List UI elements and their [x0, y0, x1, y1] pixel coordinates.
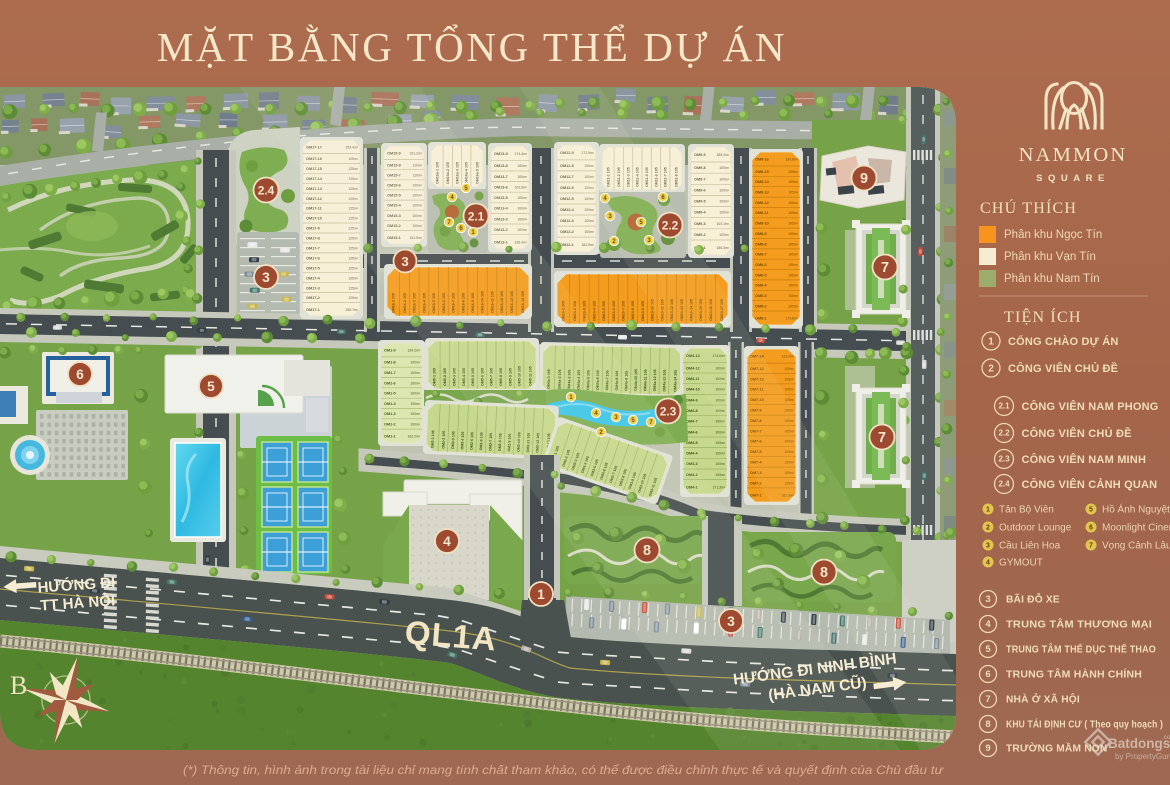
svg-text:7: 7 — [1089, 543, 1093, 550]
svg-text:105m²: 105m² — [788, 294, 798, 298]
svg-text:OM4a-12 105: OM4a-12 105 — [653, 369, 657, 391]
svg-text:OM17-9: OM17-9 — [306, 227, 320, 231]
svg-text:3: 3 — [985, 594, 990, 605]
svg-text:OM8-9: OM8-9 — [755, 232, 767, 236]
svg-text:105m²: 105m² — [788, 304, 798, 308]
svg-text:OM12-7: OM12-7 — [560, 175, 574, 179]
svg-text:180.8m²: 180.8m² — [786, 158, 799, 162]
svg-text:100m²: 100m² — [719, 233, 729, 237]
svg-text:OM8-15: OM8-15 — [755, 170, 769, 174]
svg-text:Moonlight Cinema: Moonlight Cinema — [1102, 523, 1170, 534]
svg-text:NHÀ Ở XÃ HỘI: NHÀ Ở XÃ HỘI — [1006, 693, 1080, 706]
svg-text:100m²: 100m² — [410, 361, 420, 365]
svg-text:OM12-4: OM12-4 — [560, 208, 575, 212]
svg-text:8: 8 — [985, 719, 990, 730]
svg-text:OM1-3: OM1-3 — [384, 412, 396, 416]
svg-text:OM8-11: OM8-11 — [755, 211, 769, 215]
svg-text:OM2-4 105: OM2-4 105 — [460, 431, 465, 449]
svg-text:4: 4 — [986, 560, 990, 567]
svg-text:OM17-4: OM17-4 — [306, 276, 321, 280]
svg-text:(*) Thông tin, hình ảnh trong: (*) Thông tin, hình ảnh trong tài liệu c… — [183, 763, 945, 777]
svg-text:2.2: 2.2 — [998, 429, 1010, 438]
svg-text:105m²: 105m² — [784, 367, 794, 371]
svg-text:100m²: 100m² — [517, 196, 527, 200]
svg-text:105m²: 105m² — [788, 232, 798, 236]
svg-text:OM17-2: OM17-2 — [306, 296, 320, 300]
svg-text:6: 6 — [76, 367, 84, 382]
svg-text:105m²: 105m² — [788, 273, 798, 277]
svg-text:174.8m²: 174.8m² — [786, 317, 799, 321]
svg-text:OM2-6 105: OM2-6 105 — [479, 432, 484, 450]
svg-text:100m²: 100m² — [517, 164, 527, 168]
svg-text:105m²: 105m² — [788, 253, 798, 257]
svg-text:OM17-1: OM17-1 — [306, 308, 320, 312]
svg-text:OM8-1: OM8-1 — [755, 317, 767, 321]
svg-text:OM13-6: OM13-6 — [494, 186, 508, 190]
svg-text:100m²: 100m² — [584, 208, 594, 212]
svg-text:OM7-1: OM7-1 — [750, 494, 762, 498]
svg-text:105m²: 105m² — [788, 263, 798, 267]
svg-text:8: 8 — [820, 565, 828, 581]
svg-text:OM17-10: OM17-10 — [306, 217, 322, 221]
svg-text:100m²: 100m² — [715, 452, 725, 456]
svg-text:OM5-1 105: OM5-1 105 — [433, 368, 437, 386]
svg-text:CÔNG VIÊN NAM PHONG: CÔNG VIÊN NAM PHONG — [1022, 400, 1159, 413]
svg-text:OM11-8 105: OM11-8 105 — [674, 167, 678, 187]
svg-text:100m²: 100m² — [584, 230, 594, 234]
svg-text:100m²: 100m² — [410, 412, 420, 416]
svg-text:100m²: 100m² — [715, 441, 725, 445]
svg-text:OM10-6 105: OM10-6 105 — [612, 301, 616, 321]
svg-text:125m²: 125m² — [348, 256, 358, 260]
svg-text:OM1-7: OM1-7 — [384, 371, 396, 375]
svg-text:103.1m²: 103.1m² — [717, 222, 730, 226]
svg-text:OM1-1: OM1-1 — [384, 435, 396, 439]
svg-text:103.6m²: 103.6m² — [515, 186, 528, 190]
svg-text:QL1A: QL1A — [404, 613, 499, 657]
svg-text:6: 6 — [985, 669, 990, 680]
svg-text:174.4m²: 174.4m² — [515, 152, 528, 156]
svg-text:100m²: 100m² — [715, 430, 725, 434]
svg-text:OM8-6: OM8-6 — [755, 263, 767, 267]
svg-text:OM9-3: OM9-3 — [694, 222, 706, 226]
svg-text:OM4-10: OM4-10 — [686, 388, 700, 392]
svg-text:OM17-6: OM17-6 — [306, 256, 320, 260]
svg-text:100m²: 100m² — [410, 381, 420, 385]
svg-text:OM4a-11 105: OM4a-11 105 — [643, 369, 647, 391]
svg-text:OM1-5: OM1-5 — [384, 392, 396, 396]
svg-text:5: 5 — [985, 644, 991, 655]
svg-text:OM8-10: OM8-10 — [755, 222, 769, 226]
svg-text:OM10-5 105: OM10-5 105 — [602, 301, 606, 321]
svg-text:186.3m²: 186.3m² — [717, 246, 730, 250]
svg-text:255.7m²: 255.7m² — [346, 308, 359, 312]
svg-text:OM8-3: OM8-3 — [755, 294, 767, 298]
svg-text:105m²: 105m² — [788, 211, 798, 215]
svg-text:OM8-5: OM8-5 — [755, 273, 767, 277]
svg-text:OM13-9: OM13-9 — [494, 152, 508, 156]
svg-text:OM4-6: OM4-6 — [686, 430, 698, 434]
svg-text:OM8-13: OM8-13 — [755, 191, 769, 195]
svg-text:OM13-7: OM13-7 — [494, 175, 508, 179]
svg-text:OM8-14: OM8-14 — [755, 180, 770, 184]
svg-text:TRUNG TÂM THỂ DỤC THỂ THAO: TRUNG TÂM THỂ DỤC THỂ THAO — [1006, 643, 1156, 656]
svg-text:5: 5 — [1089, 507, 1093, 514]
svg-text:2.1: 2.1 — [468, 209, 485, 223]
svg-text:105m²: 105m² — [788, 222, 798, 226]
svg-text:105m²: 105m² — [788, 284, 798, 288]
svg-text:100m²: 100m² — [715, 473, 725, 477]
svg-text:OM2-2 105: OM2-2 105 — [441, 431, 446, 449]
svg-text:CỔNG CHÀO DỰ ÁN: CỔNG CHÀO DỰ ÁN — [1008, 335, 1119, 348]
svg-text:.com: .com — [1162, 734, 1170, 741]
svg-text:4: 4 — [443, 534, 451, 549]
svg-text:OM9-7: OM9-7 — [694, 177, 706, 181]
svg-text:OM12-3: OM12-3 — [560, 219, 574, 223]
svg-text:OM4-8: OM4-8 — [686, 409, 698, 413]
svg-text:2.2: 2.2 — [662, 218, 679, 232]
svg-text:3: 3 — [986, 543, 990, 550]
svg-text:Phân khu Nam Tín: Phân khu Nam Tín — [1004, 273, 1100, 285]
svg-text:OM17-12: OM17-12 — [306, 197, 322, 201]
svg-text:125m²: 125m² — [348, 296, 358, 300]
svg-text:OM4a-13 105: OM4a-13 105 — [662, 370, 666, 392]
svg-text:OM12-2: OM12-2 — [560, 230, 574, 234]
svg-text:OM9-4: OM9-4 — [694, 211, 706, 215]
svg-text:9: 9 — [860, 171, 868, 187]
svg-text:OM1-2: OM1-2 — [384, 423, 396, 427]
svg-text:OM8-2: OM8-2 — [755, 304, 767, 308]
svg-text:OM4a-14 105: OM4a-14 105 — [673, 370, 677, 392]
svg-text:OM12-5: OM12-5 — [560, 197, 574, 201]
svg-text:105m²: 105m² — [784, 377, 794, 381]
svg-text:2.4: 2.4 — [998, 480, 1010, 489]
svg-text:CÔNG VIÊN NAM MINH: CÔNG VIÊN NAM MINH — [1022, 453, 1147, 466]
svg-text:125m²: 125m² — [348, 276, 358, 280]
svg-text:1: 1 — [986, 507, 990, 514]
svg-text:MẶT BẰNG TỔNG THỂ DỰ ÁN: MẶT BẰNG TỔNG THỂ DỰ ÁN — [157, 24, 787, 70]
svg-text:OM9-5: OM9-5 — [694, 200, 706, 204]
svg-text:OM12-6: OM12-6 — [560, 186, 574, 190]
svg-text:105m²: 105m² — [788, 191, 798, 195]
svg-text:3: 3 — [727, 614, 735, 629]
svg-text:7: 7 — [985, 694, 990, 705]
svg-text:OM13-8: OM13-8 — [494, 164, 508, 168]
svg-text:100m²: 100m² — [584, 219, 594, 223]
svg-text:171.3m²: 171.3m² — [713, 485, 726, 489]
svg-text:Vọng Cảnh Lâu: Vọng Cảnh Lâu — [1102, 541, 1170, 552]
svg-text:OM2-3 105: OM2-3 105 — [451, 431, 456, 449]
svg-text:OM9-9: OM9-9 — [694, 153, 706, 157]
svg-text:100m²: 100m² — [517, 207, 527, 211]
svg-text:5: 5 — [207, 379, 215, 394]
svg-text:100m²: 100m² — [715, 462, 725, 466]
svg-text:Batdongsan: Batdongsan — [1108, 736, 1170, 751]
svg-text:181.9m²: 181.9m² — [582, 243, 595, 247]
svg-text:8: 8 — [643, 543, 651, 559]
svg-text:OM1-4: OM1-4 — [384, 402, 396, 406]
svg-text:105m²: 105m² — [788, 180, 798, 184]
svg-text:OM11-7 105: OM11-7 105 — [664, 167, 668, 187]
svg-text:3: 3 — [262, 270, 270, 285]
svg-text:Outdoor Lounge: Outdoor Lounge — [999, 523, 1072, 534]
svg-text:100m²: 100m² — [719, 200, 729, 204]
svg-text:OM8-4: OM8-4 — [755, 284, 767, 288]
svg-text:100m²: 100m² — [719, 177, 729, 181]
svg-text:9: 9 — [985, 743, 990, 754]
svg-text:OM2-5 105: OM2-5 105 — [470, 432, 475, 450]
svg-text:OM8-16: OM8-16 — [755, 158, 769, 162]
svg-text:100m²: 100m² — [410, 423, 420, 427]
svg-text:100m²: 100m² — [410, 392, 420, 396]
svg-text:4: 4 — [985, 619, 991, 630]
svg-text:GYMOUT: GYMOUT — [999, 558, 1043, 569]
svg-text:139.2m²: 139.2m² — [408, 349, 421, 353]
svg-text:BÃI ĐỖ XE: BÃI ĐỖ XE — [1006, 593, 1060, 606]
svg-text:OM10-4 105: OM10-4 105 — [592, 301, 596, 321]
svg-text:3: 3 — [401, 254, 408, 269]
svg-text:100m²: 100m² — [517, 217, 527, 221]
svg-text:OM9-6: OM9-6 — [694, 189, 706, 193]
svg-text:OM2-1 105: OM2-1 105 — [431, 430, 436, 448]
svg-text:by PropertyGuru: by PropertyGuru — [1115, 752, 1170, 761]
svg-text:Phân khu Vạn Tín: Phân khu Vạn Tín — [1004, 251, 1096, 263]
svg-text:105m²: 105m² — [788, 201, 798, 205]
svg-text:KHU TÁI ĐỊNH CƯ ( Theo quy hoạ: KHU TÁI ĐỊNH CƯ ( Theo quy hoạch ) — [1006, 718, 1163, 731]
svg-text:105m²: 105m² — [784, 388, 794, 392]
svg-text:7: 7 — [878, 430, 886, 446]
svg-text:CÔNG VIÊN CHỦ ĐỀ: CÔNG VIÊN CHỦ ĐỀ — [1008, 362, 1118, 375]
svg-text:OM4-4: OM4-4 — [686, 452, 698, 456]
svg-text:Hồ Ánh Nguyệt: Hồ Ánh Nguyệt — [1102, 503, 1170, 516]
svg-text:OM17-3: OM17-3 — [306, 286, 320, 290]
svg-text:1: 1 — [537, 587, 545, 602]
svg-text:100m²: 100m² — [719, 166, 729, 170]
svg-text:NAMMON: NAMMON — [1019, 144, 1128, 166]
svg-text:105m²: 105m² — [788, 242, 798, 246]
svg-text:TRUNG TÂM THƯƠNG MẠI: TRUNG TÂM THƯƠNG MẠI — [1006, 618, 1152, 631]
svg-text:100m²: 100m² — [410, 402, 420, 406]
svg-text:OM8-7: OM8-7 — [755, 253, 767, 257]
svg-text:OM1-8: OM1-8 — [384, 361, 396, 365]
svg-text:OM9-2: OM9-2 — [694, 233, 706, 237]
svg-text:OM4-9: OM4-9 — [686, 398, 698, 402]
svg-text:185.2m²: 185.2m² — [717, 153, 730, 157]
svg-text:Phân khu Ngọc Tín: Phân khu Ngọc Tín — [1004, 229, 1102, 241]
svg-text:OM10-9 105: OM10-9 105 — [641, 301, 645, 321]
svg-text:100m²: 100m² — [719, 211, 729, 215]
svg-text:2: 2 — [988, 363, 994, 374]
svg-text:100m²: 100m² — [517, 175, 527, 179]
svg-text:OM17-8: OM17-8 — [306, 237, 320, 241]
svg-text:125m²: 125m² — [348, 266, 358, 270]
svg-text:CHÚ THÍCH: CHÚ THÍCH — [980, 198, 1077, 217]
svg-text:OM10-8 105: OM10-8 105 — [631, 301, 635, 321]
svg-text:125m²: 125m² — [348, 286, 358, 290]
svg-text:CÔNG VIÊN CHỦ ĐỀ: CÔNG VIÊN CHỦ ĐỀ — [1022, 427, 1132, 440]
svg-text:OM8-8: OM8-8 — [755, 242, 767, 246]
svg-text:CÔNG VIÊN CẢNH QUAN: CÔNG VIÊN CẢNH QUAN — [1022, 478, 1158, 491]
svg-text:B: B — [10, 671, 27, 700]
svg-text:6: 6 — [1089, 525, 1093, 532]
svg-text:OM9-8: OM9-8 — [694, 166, 706, 170]
svg-text:OM12-1: OM12-1 — [560, 243, 574, 247]
svg-text:OM17-11: OM17-11 — [306, 207, 322, 211]
svg-text:OM4-7: OM4-7 — [686, 420, 698, 424]
svg-text:2.1: 2.1 — [998, 402, 1010, 411]
svg-text:105m²: 105m² — [788, 170, 798, 174]
svg-text:OM10-7 105: OM10-7 105 — [622, 301, 626, 321]
svg-text:2.3: 2.3 — [660, 404, 677, 418]
svg-text:Tản Bộ Viên: Tản Bộ Viên — [999, 505, 1054, 516]
svg-text:2.4: 2.4 — [258, 183, 275, 197]
svg-text:2.3: 2.3 — [998, 455, 1010, 464]
svg-text:100m²: 100m² — [719, 189, 729, 193]
svg-text:7: 7 — [881, 260, 889, 276]
svg-text:112.4m²: 112.4m² — [782, 355, 795, 359]
svg-text:100m²: 100m² — [410, 371, 420, 375]
svg-text:OM1-9: OM1-9 — [384, 349, 396, 353]
svg-text:OM17-7: OM17-7 — [306, 247, 320, 251]
svg-text:OM1-6: OM1-6 — [384, 381, 396, 385]
svg-text:OM8-12: OM8-12 — [755, 201, 769, 205]
svg-text:2: 2 — [986, 525, 990, 532]
svg-text:SQUARE: SQUARE — [1036, 173, 1110, 184]
svg-text:TRUNG TÂM HÀNH CHÍNH: TRUNG TÂM HÀNH CHÍNH — [1006, 668, 1142, 681]
svg-text:162.2m²: 162.2m² — [408, 435, 421, 439]
svg-text:OM17-5: OM17-5 — [306, 266, 320, 270]
svg-text:Cầu Liên Hoa: Cầu Liên Hoa — [999, 540, 1061, 552]
svg-text:TIỆN ÍCH: TIỆN ÍCH — [1004, 307, 1082, 326]
svg-text:1: 1 — [988, 336, 994, 347]
